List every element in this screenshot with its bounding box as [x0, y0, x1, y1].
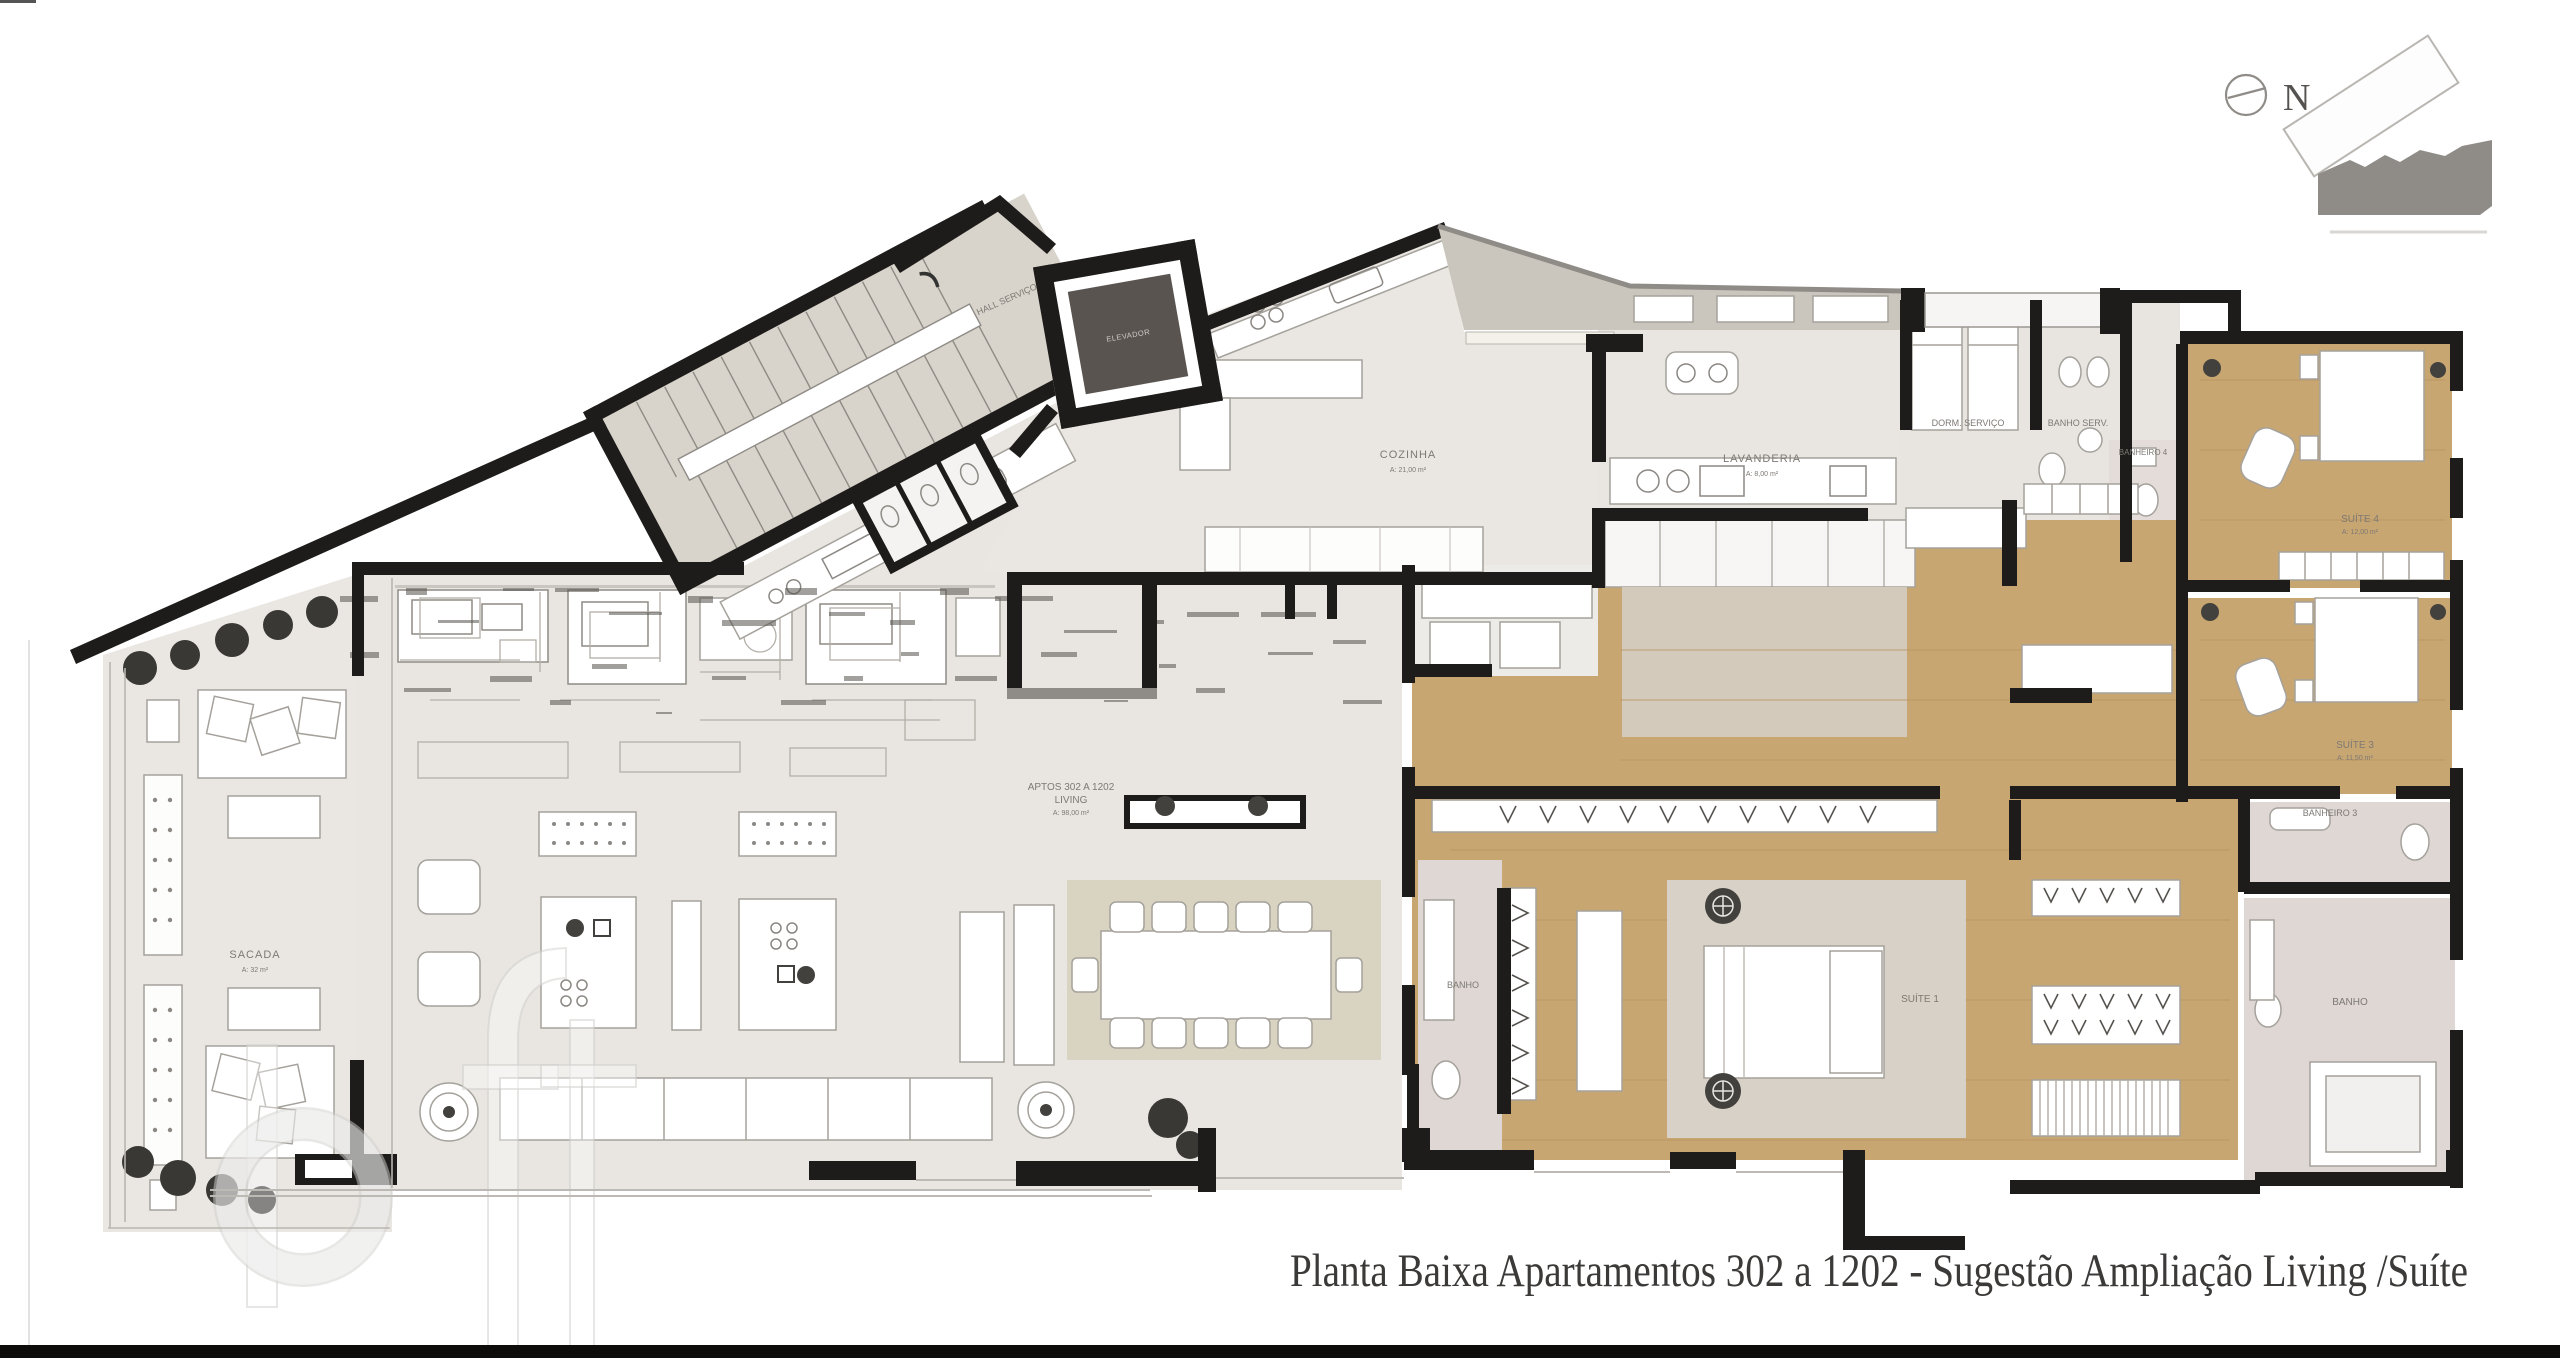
svg-text:BANHEIRO 3: BANHEIRO 3	[2303, 808, 2358, 818]
svg-text:A: 8,00 m²: A: 8,00 m²	[1746, 471, 1779, 478]
svg-text:Planta Baixa Apartamentos 3: Planta Baixa Apartamentos 302 a 1202 - S…	[1290, 1245, 2468, 1297]
svg-text:LAVANDERIA: LAVANDERIA	[1723, 453, 1801, 465]
svg-text:A: 32 m²: A: 32 m²	[242, 967, 269, 974]
svg-text:SUÍTE 4: SUÍTE 4	[2341, 512, 2379, 525]
svg-text:BANHEIRO 4: BANHEIRO 4	[2119, 448, 2168, 457]
svg-text:DORM. SERVIÇO: DORM. SERVIÇO	[1932, 418, 2005, 428]
svg-text:N: N	[2283, 77, 2310, 119]
svg-text:BANHO: BANHO	[2332, 997, 2368, 1008]
svg-text:BANHO: BANHO	[1447, 980, 1479, 990]
svg-text:A: 11,50 m²: A: 11,50 m²	[2337, 755, 2373, 762]
svg-text:A: 12,00 m²: A: 12,00 m²	[2342, 529, 2379, 536]
svg-text:SACADA: SACADA	[229, 949, 280, 961]
svg-text:BANHO SERV.: BANHO SERV.	[2048, 418, 2109, 428]
svg-text:SUÍTE 3: SUÍTE 3	[2336, 738, 2374, 751]
svg-text:COZINHA: COZINHA	[1380, 449, 1437, 461]
svg-text:LIVING: LIVING	[1055, 795, 1088, 806]
svg-text:SUÍTE 1: SUÍTE 1	[1901, 992, 1939, 1005]
svg-text:A: 21,00 m²: A: 21,00 m²	[1390, 467, 1427, 474]
svg-text:APTOS 302 A 1202: APTOS 302 A 1202	[1028, 782, 1115, 793]
svg-text:A: 98,00 m²: A: 98,00 m²	[1053, 810, 1090, 817]
